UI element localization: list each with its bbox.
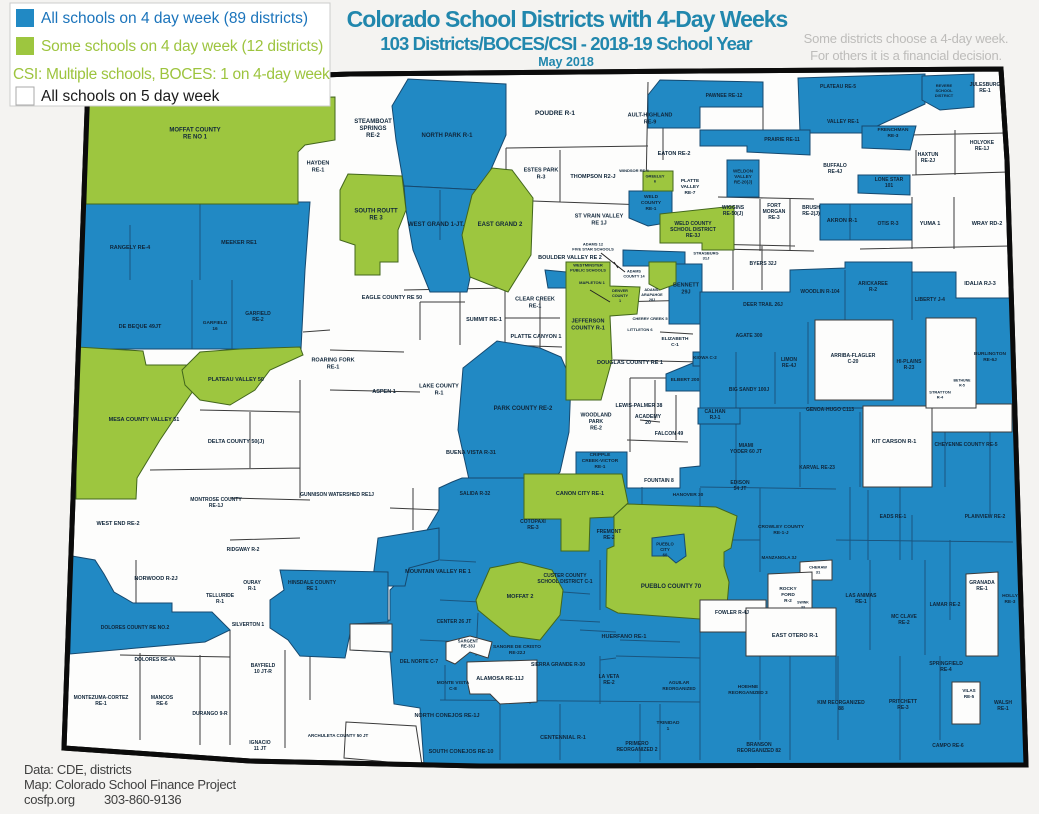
svg-text:C-20: C-20: [848, 359, 859, 365]
svg-text:31J: 31J: [703, 256, 710, 261]
svg-text:YODER 60 JT: YODER 60 JT: [730, 449, 762, 455]
svg-text:RE-2: RE-2: [898, 620, 910, 626]
svg-text:BOULDER VALLEY RE 2: BOULDER VALLEY RE 2: [538, 255, 602, 261]
svg-text:CALHAN: CALHAN: [704, 409, 725, 415]
svg-text:LIBERTY J-4: LIBERTY J-4: [915, 297, 945, 303]
svg-text:FORT: FORT: [767, 203, 781, 209]
svg-text:60: 60: [663, 552, 668, 557]
svg-text:FIVE STAR SCHOOLS: FIVE STAR SCHOOLS: [572, 247, 614, 252]
svg-text:ARICKAREE: ARICKAREE: [858, 281, 888, 287]
svg-text:CRIPPLE: CRIPPLE: [590, 452, 612, 458]
svg-text:REORGANIZED 82: REORGANIZED 82: [737, 748, 781, 754]
svg-text:DOUGLAS COUNTY RE 1: DOUGLAS COUNTY RE 1: [597, 360, 663, 366]
svg-text:RE-3: RE-3: [897, 705, 909, 711]
svg-text:ESTES PARK: ESTES PARK: [524, 168, 559, 174]
svg-text:BURLINGTON: BURLINGTON: [974, 351, 1006, 357]
svg-text:R-2: R-2: [869, 287, 877, 293]
svg-text:NORWOOD R-2J: NORWOOD R-2J: [134, 576, 177, 582]
svg-text:RE-5: RE-5: [964, 694, 975, 699]
svg-text:RE-2: RE-2: [603, 535, 615, 541]
svg-text:PAWNEE RE-12: PAWNEE RE-12: [706, 93, 743, 99]
svg-text:31: 31: [816, 570, 821, 575]
svg-text:STEAMBOAT: STEAMBOAT: [354, 119, 392, 125]
svg-text:ELIZABETH: ELIZABETH: [662, 336, 689, 342]
svg-text:88: 88: [838, 706, 844, 712]
svg-text:RE-1: RE-1: [95, 701, 107, 707]
svg-text:WOODLAND: WOODLAND: [580, 413, 611, 419]
svg-text:CLEAR CREEK: CLEAR CREEK: [515, 297, 555, 303]
svg-text:MONTROSE COUNTY: MONTROSE COUNTY: [190, 497, 242, 503]
svg-text:WOODLIN R-104: WOODLIN R-104: [800, 289, 839, 295]
svg-text:ACADEMY: ACADEMY: [635, 414, 662, 420]
svg-text:ADAMS-: ADAMS-: [644, 288, 660, 292]
svg-text:AKRON R-1: AKRON R-1: [827, 218, 858, 224]
svg-text:RE-4: RE-4: [940, 667, 952, 673]
svg-text:R-1: R-1: [435, 390, 444, 396]
svg-text:MOFFAT 2: MOFFAT 2: [507, 594, 534, 600]
svg-text:RE-33J: RE-33J: [461, 644, 476, 649]
svg-text:MONTEZUMA-CORTEZ: MONTEZUMA-CORTEZ: [74, 695, 129, 701]
svg-text:BETHUNE: BETHUNE: [954, 379, 972, 383]
svg-text:BRANSON: BRANSON: [746, 742, 772, 748]
svg-text:ALAMOSA RE-11J: ALAMOSA RE-11J: [476, 676, 523, 682]
svg-text:33: 33: [801, 605, 805, 609]
svg-text:LAMAR RE-2: LAMAR RE-2: [930, 602, 961, 608]
svg-text:BAYFIELD: BAYFIELD: [251, 663, 276, 669]
svg-text:RE-1J: RE-1J: [975, 146, 989, 152]
svg-text:C-1: C-1: [671, 342, 679, 348]
svg-text:CHEYENNE COUNTY RE-5: CHEYENNE COUNTY RE-5: [935, 442, 998, 448]
svg-text:PRAIRIE RE-11: PRAIRIE RE-11: [764, 137, 800, 143]
svg-text:SALIDA R-32: SALIDA R-32: [460, 491, 491, 497]
svg-text:RE-4J: RE-4J: [828, 169, 842, 175]
svg-text:WALSH: WALSH: [994, 700, 1012, 706]
svg-text:RE-1: RE-1: [327, 364, 340, 370]
svg-text:LITTLETON 6: LITTLETON 6: [627, 327, 653, 332]
svg-text:VALLEY RE-1: VALLEY RE-1: [827, 119, 859, 125]
svg-text:MOFFAT COUNTY: MOFFAT COUNTY: [169, 127, 220, 133]
svg-text:YUMA 1: YUMA 1: [920, 221, 941, 227]
svg-text:RE-20(J): RE-20(J): [734, 180, 753, 185]
svg-text:RE 1J: RE 1J: [591, 220, 606, 226]
svg-text:SOUTH ROUTT: SOUTH ROUTT: [354, 208, 398, 214]
svg-text:RE-1: RE-1: [997, 706, 1009, 712]
svg-text:DOLORES RE-4A: DOLORES RE-4A: [134, 657, 176, 663]
svg-text:RE-1: RE-1: [646, 206, 657, 212]
svg-text:GRANADA: GRANADA: [969, 580, 995, 586]
svg-text:SOUTH CONEJOS RE-10: SOUTH CONEJOS RE-10: [429, 749, 494, 755]
svg-text:FOWLER R-4J: FOWLER R-4J: [715, 610, 749, 616]
svg-text:IDALIA RJ-3: IDALIA RJ-3: [964, 281, 996, 287]
svg-text:CENTER 26 JT: CENTER 26 JT: [437, 619, 472, 625]
svg-text:28J: 28J: [649, 298, 655, 302]
svg-text:SCHOOL DISTRICT C-1: SCHOOL DISTRICT C-1: [537, 579, 592, 585]
svg-text:BIG SANDY 100J: BIG SANDY 100J: [729, 387, 769, 393]
svg-text:RE-7: RE-7: [685, 190, 696, 196]
svg-text:MC CLAVE: MC CLAVE: [891, 614, 917, 620]
svg-text:RE-6: RE-6: [156, 701, 168, 707]
svg-text:RE-50(J): RE-50(J): [723, 211, 744, 217]
svg-text:EDISON: EDISON: [730, 480, 750, 486]
svg-text:AGUILAR: AGUILAR: [669, 680, 690, 685]
svg-text:CROWLEY COUNTY: CROWLEY COUNTY: [758, 524, 805, 530]
svg-text:GARFIELD: GARFIELD: [245, 311, 271, 317]
svg-text:RE-2(J): RE-2(J): [802, 211, 820, 217]
svg-text:RE-1-J: RE-1-J: [773, 530, 789, 536]
svg-text:CUSTER COUNTY: CUSTER COUNTY: [543, 573, 587, 579]
svg-text:KIM REORGANIZED: KIM REORGANIZED: [817, 700, 865, 706]
svg-text:TRINIDAD: TRINIDAD: [657, 720, 680, 726]
svg-text:MESA COUNTY VALLEY 51: MESA COUNTY VALLEY 51: [109, 417, 180, 423]
svg-text:LAKE COUNTY: LAKE COUNTY: [419, 384, 459, 390]
svg-text:THOMPSON R2-J: THOMPSON R2-J: [570, 174, 615, 180]
svg-text:CENTENNIAL R-1: CENTENNIAL R-1: [540, 735, 586, 741]
svg-text:ELBERT 200: ELBERT 200: [671, 377, 700, 383]
svg-text:BENNETT: BENNETT: [673, 283, 700, 289]
svg-text:DEL NORTE C-7: DEL NORTE C-7: [400, 659, 438, 665]
svg-text:FALCON 49: FALCON 49: [655, 431, 684, 437]
svg-text:MEEKER RE1: MEEKER RE1: [221, 240, 257, 246]
svg-text:RE-3: RE-3: [527, 525, 539, 531]
svg-text:Some districts choose a 4-day: Some districts choose a 4-day week.: [804, 31, 1009, 46]
svg-text:PRIMERO: PRIMERO: [625, 741, 648, 747]
svg-text:PARK: PARK: [589, 419, 604, 425]
svg-text:RE-9: RE-9: [644, 119, 657, 125]
svg-text:RE-1J: RE-1J: [209, 503, 223, 509]
svg-text:ASPEN 1: ASPEN 1: [372, 389, 396, 395]
svg-text:101: 101: [885, 183, 894, 189]
svg-text:PLATTE CANYON 1: PLATTE CANYON 1: [511, 334, 562, 340]
svg-text:REORGANIZED 2: REORGANIZED 2: [616, 747, 657, 753]
svg-text:DE BEQUE 49JT: DE BEQUE 49JT: [119, 324, 162, 330]
svg-text:DISTRICT: DISTRICT: [935, 93, 954, 98]
svg-text:RE-2: RE-2: [603, 680, 615, 686]
svg-text:CHERRY CREEK 5: CHERRY CREEK 5: [632, 316, 668, 321]
svg-text:OURAY: OURAY: [243, 580, 261, 586]
svg-text:SPRINGS: SPRINGS: [359, 126, 386, 132]
svg-text:EATON RE-2: EATON RE-2: [658, 151, 691, 157]
svg-text:Data: CDE, districts: Data: CDE, districts: [24, 762, 132, 777]
svg-text:VALLEY: VALLEY: [681, 184, 700, 190]
svg-text:RE-2: RE-2: [252, 317, 264, 323]
svg-text:R-1: R-1: [216, 599, 224, 605]
svg-text:NORTH PARK R-1: NORTH PARK R-1: [422, 133, 474, 139]
svg-text:All schools on 4 day week (89: All schools on 4 day week (89 districts): [41, 10, 308, 27]
svg-text:RE-3: RE-3: [888, 133, 899, 139]
svg-text:EAST GRAND 2: EAST GRAND 2: [478, 222, 523, 228]
svg-text:CITY: CITY: [660, 547, 670, 552]
svg-text:WELDON: WELDON: [733, 168, 753, 173]
svg-text:103 Districts/BOCES/CSI - 2018: 103 Districts/BOCES/CSI - 2018-19 School…: [380, 33, 752, 54]
svg-text:LEWIS-PALMER 38: LEWIS-PALMER 38: [616, 403, 663, 409]
svg-text:11 JT: 11 JT: [254, 746, 267, 752]
svg-text:COUNTY: COUNTY: [612, 294, 628, 298]
svg-text:SANGRE DE CRISTO: SANGRE DE CRISTO: [493, 644, 541, 650]
svg-text:ROCKY: ROCKY: [779, 586, 797, 592]
svg-text:Some schools on 4 day week (12: Some schools on 4 day week (12 districts…: [41, 38, 323, 55]
svg-text:PARK COUNTY RE-2: PARK COUNTY RE-2: [494, 406, 553, 412]
svg-text:VALLEY: VALLEY: [734, 174, 751, 179]
svg-text:WRAY RD-2: WRAY RD-2: [972, 221, 1003, 227]
svg-text:RE 1: RE 1: [306, 586, 317, 592]
svg-text:GUNNISON WATERSHED RE1J: GUNNISON WATERSHED RE1J: [300, 492, 374, 498]
svg-text:C-8: C-8: [449, 686, 457, 692]
svg-text:RE 3: RE 3: [369, 216, 383, 222]
svg-text:POUDRE R-1: POUDRE R-1: [535, 110, 575, 117]
svg-text:FRENCHMAN: FRENCHMAN: [878, 127, 909, 133]
svg-text:COTOPAXI: COTOPAXI: [520, 519, 546, 525]
svg-text:SILVERTON 1: SILVERTON 1: [232, 622, 265, 628]
svg-text:RE-3J: RE-3J: [686, 233, 700, 239]
svg-text:RE-1: RE-1: [979, 88, 991, 94]
svg-text:AGATE 300: AGATE 300: [736, 333, 763, 339]
svg-text:HOEHNE: HOEHNE: [738, 684, 759, 690]
svg-text:SUMMIT RE-1: SUMMIT RE-1: [466, 317, 502, 323]
svg-text:EAGLE COUNTY RE 50: EAGLE COUNTY RE 50: [362, 295, 422, 301]
svg-text:PLATEAU RE-5: PLATEAU RE-5: [820, 84, 856, 90]
svg-text:303-860-9136: 303-860-9136: [104, 792, 181, 807]
svg-text:DENVER: DENVER: [612, 289, 628, 293]
svg-text:ROARING FORK: ROARING FORK: [311, 358, 354, 364]
svg-text:REORGANIZED: REORGANIZED: [662, 686, 696, 691]
svg-text:KIOWA C-2: KIOWA C-2: [693, 355, 717, 360]
svg-text:For others it is a financial d: For others it is a financial decision.: [810, 48, 1002, 63]
svg-text:PUEBLO COUNTY 70: PUEBLO COUNTY 70: [641, 584, 702, 590]
svg-text:10 JT-R: 10 JT-R: [254, 669, 272, 675]
svg-text:BRUSH: BRUSH: [802, 205, 820, 211]
svg-text:LIMON: LIMON: [781, 357, 797, 363]
svg-text:DURANGO 9-R: DURANGO 9-R: [192, 711, 228, 717]
svg-text:MANZANOLA 3J: MANZANOLA 3J: [761, 555, 797, 560]
svg-text:GENOA-HUGO C113: GENOA-HUGO C113: [806, 407, 854, 413]
svg-text:CREEK-VICTOR: CREEK-VICTOR: [582, 458, 619, 464]
svg-text:HINSDALE COUNTY: HINSDALE COUNTY: [288, 580, 337, 586]
svg-text:DOLORES COUNTY RE NO.2: DOLORES COUNTY RE NO.2: [101, 625, 170, 631]
svg-text:RE NO 1: RE NO 1: [183, 135, 208, 141]
svg-text:HOLLY: HOLLY: [1002, 593, 1019, 599]
svg-text:HAXTUN: HAXTUN: [918, 152, 939, 158]
svg-text:RIDGWAY R-2: RIDGWAY R-2: [227, 547, 260, 553]
svg-text:WELD COUNTY: WELD COUNTY: [674, 221, 712, 227]
svg-text:All schools on 5 day week: All schools on 5 day week: [41, 88, 220, 105]
svg-text:MORGAN: MORGAN: [763, 209, 786, 215]
svg-text:REORGANIZED 3: REORGANIZED 3: [728, 690, 768, 696]
svg-text:54 JT: 54 JT: [734, 486, 747, 492]
svg-text:PLATEAU VALLEY 50: PLATEAU VALLEY 50: [208, 377, 264, 383]
svg-text:RANGELY RE-4: RANGELY RE-4: [110, 245, 151, 251]
svg-text:RJ-1: RJ-1: [710, 415, 721, 421]
svg-text:MONTE VISTA: MONTE VISTA: [437, 680, 470, 686]
svg-text:CAMPO RE-6: CAMPO RE-6: [932, 743, 964, 749]
svg-text:R-5: R-5: [959, 383, 965, 387]
svg-text:BYERS 32J: BYERS 32J: [750, 261, 777, 267]
svg-text:RE-2J: RE-2J: [921, 158, 935, 164]
svg-text:PLAINVIEW RE-2: PLAINVIEW RE-2: [965, 514, 1006, 520]
svg-text:FREMONT: FREMONT: [597, 529, 622, 535]
svg-text:20: 20: [645, 420, 651, 426]
svg-text:LAS ANIMAS: LAS ANIMAS: [846, 593, 878, 599]
svg-text:R-23: R-23: [904, 365, 915, 371]
svg-text:ADAMS: ADAMS: [627, 270, 641, 274]
svg-text:GARFIELD: GARFIELD: [203, 320, 228, 326]
svg-text:16: 16: [212, 326, 218, 332]
svg-text:MAPLETON 1: MAPLETON 1: [579, 280, 605, 285]
svg-text:ST VRAIN VALLEY: ST VRAIN VALLEY: [575, 214, 624, 220]
svg-text:LA VETA: LA VETA: [599, 674, 620, 680]
svg-text:BUENA VISTA R-31: BUENA VISTA R-31: [446, 450, 496, 456]
svg-text:SPRINGFIELD: SPRINGFIELD: [929, 661, 963, 667]
svg-text:ARAPAHOE: ARAPAHOE: [641, 293, 663, 297]
svg-text:COUNTY 14: COUNTY 14: [623, 275, 645, 279]
svg-text:HOLYOKE: HOLYOKE: [970, 140, 995, 146]
svg-text:WELD: WELD: [644, 194, 659, 200]
svg-text:Map: Colorado School Finance P: Map: Colorado School Finance Project: [24, 777, 236, 792]
svg-text:TELLURIDE: TELLURIDE: [206, 593, 235, 599]
svg-text:1: 1: [667, 726, 670, 732]
svg-text:ARRIBA-FLAGLER: ARRIBA-FLAGLER: [831, 353, 876, 359]
svg-text:HUERFANO RE-1: HUERFANO RE-1: [602, 634, 647, 640]
svg-text:RE-2: RE-2: [590, 425, 602, 431]
svg-text:DELTA COUNTY 50(J): DELTA COUNTY 50(J): [208, 439, 264, 445]
svg-text:RE-6J: RE-6J: [983, 357, 997, 363]
svg-text:RE-1: RE-1: [595, 464, 606, 470]
svg-text:R-1: R-1: [248, 586, 256, 592]
svg-text:EADS RE-1: EADS RE-1: [880, 514, 907, 520]
svg-text:WIGGINS: WIGGINS: [722, 205, 745, 211]
svg-text:WINDSOR RE-4: WINDSOR RE-4: [619, 168, 649, 173]
svg-text:SWINK: SWINK: [797, 601, 809, 605]
svg-text:29J: 29J: [681, 289, 690, 295]
svg-text:EAST OTERO R-1: EAST OTERO R-1: [772, 633, 818, 639]
svg-text:COUNTY R-1: COUNTY R-1: [571, 325, 605, 331]
svg-text:FOUNTAIN 8: FOUNTAIN 8: [644, 478, 674, 484]
svg-text:IGNACIO: IGNACIO: [249, 740, 271, 746]
svg-text:RE-1: RE-1: [529, 303, 542, 309]
svg-text:R-4: R-4: [937, 395, 944, 400]
svg-text:BUFFALO: BUFFALO: [823, 163, 847, 169]
svg-text:DEER TRAIL 26J: DEER TRAIL 26J: [743, 302, 783, 308]
svg-text:RE-1: RE-1: [855, 599, 867, 605]
svg-text:May 2018: May 2018: [538, 55, 594, 69]
svg-text:WEST END RE-2: WEST END RE-2: [96, 521, 139, 527]
svg-text:JEFFERSON: JEFFERSON: [571, 319, 604, 325]
svg-text:NORTH CONEJOS RE-1J: NORTH CONEJOS RE-1J: [414, 713, 479, 719]
svg-text:MANCOS: MANCOS: [151, 695, 174, 701]
svg-text:RE-3: RE-3: [1005, 599, 1016, 605]
svg-text:KARVAL RE-23: KARVAL RE-23: [799, 465, 835, 471]
svg-text:PUEBLO: PUEBLO: [656, 542, 674, 547]
svg-text:KIT CARSON R-1: KIT CARSON R-1: [872, 439, 917, 445]
svg-text:R-3: R-3: [537, 174, 546, 180]
svg-text:RE-22J: RE-22J: [509, 650, 526, 656]
svg-text:RE-1: RE-1: [312, 167, 325, 173]
svg-text:HANOVER 30: HANOVER 30: [673, 492, 704, 498]
svg-text:SARGENT: SARGENT: [458, 638, 479, 643]
svg-text:RE-3: RE-3: [768, 215, 780, 221]
svg-text:R-2: R-2: [784, 598, 792, 604]
svg-text:RE-1: RE-1: [976, 586, 988, 592]
svg-text:SIERRA GRANDE R-30: SIERRA GRANDE R-30: [531, 662, 585, 668]
svg-text:cosfp.org: cosfp.org: [24, 792, 75, 807]
svg-text:LONE STAR: LONE STAR: [875, 177, 904, 183]
svg-text:PUBLIC SCHOOLS: PUBLIC SCHOOLS: [570, 268, 606, 273]
svg-text:COUNTY: COUNTY: [641, 200, 662, 206]
svg-text:SCHOOL DISTRICT: SCHOOL DISTRICT: [670, 227, 716, 233]
svg-text:MOUNTAIN VALLEY RE 1: MOUNTAIN VALLEY RE 1: [405, 569, 471, 575]
svg-text:Colorado School Districts with: Colorado School Districts with 4-Day Wee…: [347, 6, 788, 32]
svg-text:JULESBURG: JULESBURG: [970, 82, 1001, 88]
svg-text:AULT-HIGHLAND: AULT-HIGHLAND: [628, 113, 673, 119]
svg-text:RE-2: RE-2: [366, 133, 380, 139]
svg-text:CANON CITY RE-1: CANON CITY RE-1: [556, 491, 604, 497]
svg-text:HI-PLAINS: HI-PLAINS: [897, 359, 923, 365]
svg-text:ARCHULETA COUNTY 50 JT: ARCHULETA COUNTY 50 JT: [308, 733, 369, 738]
svg-text:PLATTE: PLATTE: [681, 178, 700, 184]
svg-text:VILAS: VILAS: [962, 688, 975, 693]
svg-text:RE-4J: RE-4J: [782, 363, 796, 369]
svg-text:CSI: Multiple schools, BOCES:: CSI: Multiple schools, BOCES: 1 on 4-day…: [13, 66, 330, 83]
svg-text:WEST GRAND 1-JT.: WEST GRAND 1-JT.: [408, 222, 464, 228]
svg-text:1: 1: [619, 299, 621, 303]
svg-text:OTIS R-3: OTIS R-3: [877, 221, 898, 227]
svg-text:FORD: FORD: [781, 592, 795, 598]
svg-text:MIAMI: MIAMI: [739, 443, 754, 449]
svg-text:PRITCHETT: PRITCHETT: [889, 699, 917, 705]
svg-text:HAYDEN: HAYDEN: [307, 161, 330, 167]
